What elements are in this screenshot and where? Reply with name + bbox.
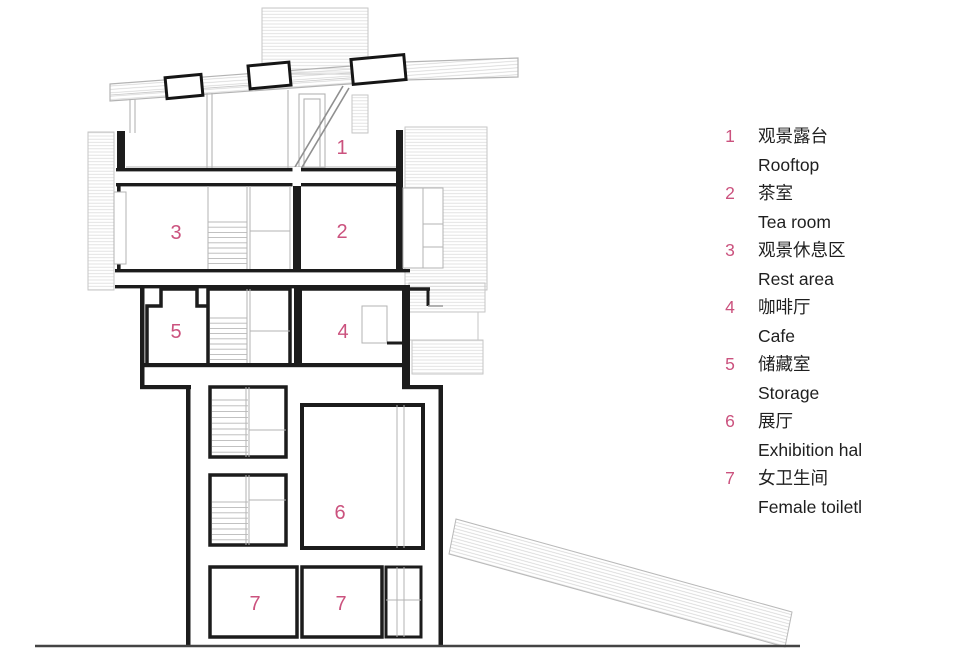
room4-alcove [362, 306, 387, 343]
room-legend: 1 观景露台 Rooftop 2 茶室 Tea room 3 观景休息区 Res… [712, 122, 952, 521]
room-label-2: 2 [336, 221, 347, 243]
skylight-3 [351, 55, 406, 85]
skylight-1 [165, 74, 203, 98]
skylight-2 [248, 62, 291, 89]
room-label-4: 4 [337, 321, 348, 343]
right-step-gap [405, 312, 478, 340]
room-label-7a: 7 [249, 593, 260, 615]
legend-num: 4 [712, 293, 748, 322]
level-rooms-3-2 [114, 186, 443, 269]
ramp-slab [449, 519, 792, 647]
legend-zh: 咖啡厅 [758, 293, 811, 322]
legend-item-2: 2 茶室 [712, 179, 952, 208]
level-rooms-7 [210, 567, 421, 637]
legend-en: Rooftop [758, 151, 819, 180]
level-stairs-room6 [140, 385, 443, 646]
terrace-parapet-left [117, 131, 125, 171]
legend-num: 2 [712, 179, 748, 208]
legend-num: 5 [712, 350, 748, 379]
room-label-7b: 7 [335, 593, 346, 615]
legend-en: Rest area [758, 265, 834, 294]
level-rooms-5-4 [140, 285, 443, 387]
section-drawing-page: 1 2 3 4 5 6 7 7 1 观景露台 Rooftop 2 茶室 Tea … [0, 0, 960, 659]
legend-num: 3 [712, 236, 748, 265]
room-label-3: 3 [170, 222, 181, 244]
legend-item-6: 6 展厅 [712, 407, 952, 436]
legend-en: Exhibition hal [758, 436, 862, 465]
room-label-5: 5 [170, 321, 181, 343]
right-step-block-b [412, 340, 483, 374]
room-label-6: 6 [334, 502, 345, 524]
legend-num: 1 [712, 122, 748, 151]
terrace-parapet-right [396, 130, 403, 190]
room-label-1: 1 [336, 137, 347, 159]
terrace-and-slabs [115, 130, 410, 288]
legend-item-5: 5 储藏室 [712, 350, 952, 379]
legend-zh: 储藏室 [758, 350, 811, 379]
left-earth-strip [88, 132, 114, 290]
legend-en: Tea room [758, 208, 831, 237]
legend-item-7: 7 女卫生间 [712, 464, 952, 493]
legend-en: Cafe [758, 322, 795, 351]
room6-outline [302, 405, 423, 548]
legend-item-3: 3 观景休息区 [712, 236, 952, 265]
legend-num: 7 [712, 464, 748, 493]
roof-skylights [165, 55, 406, 99]
legend-zh: 观景休息区 [758, 236, 846, 265]
legend-num: 6 [712, 407, 748, 436]
legend-en: Female toiletl [758, 493, 862, 522]
legend-zh: 展厅 [758, 407, 793, 436]
legend-item-4: 4 咖啡厅 [712, 293, 952, 322]
legend-zh: 茶室 [758, 179, 793, 208]
room3-window [114, 192, 126, 264]
legend-zh: 观景露台 [758, 122, 828, 151]
tower-remnant [352, 95, 368, 133]
legend-item-1: 1 观景露台 [712, 122, 952, 151]
legend-zh: 女卫生间 [758, 464, 828, 493]
legend-en: Storage [758, 379, 819, 408]
